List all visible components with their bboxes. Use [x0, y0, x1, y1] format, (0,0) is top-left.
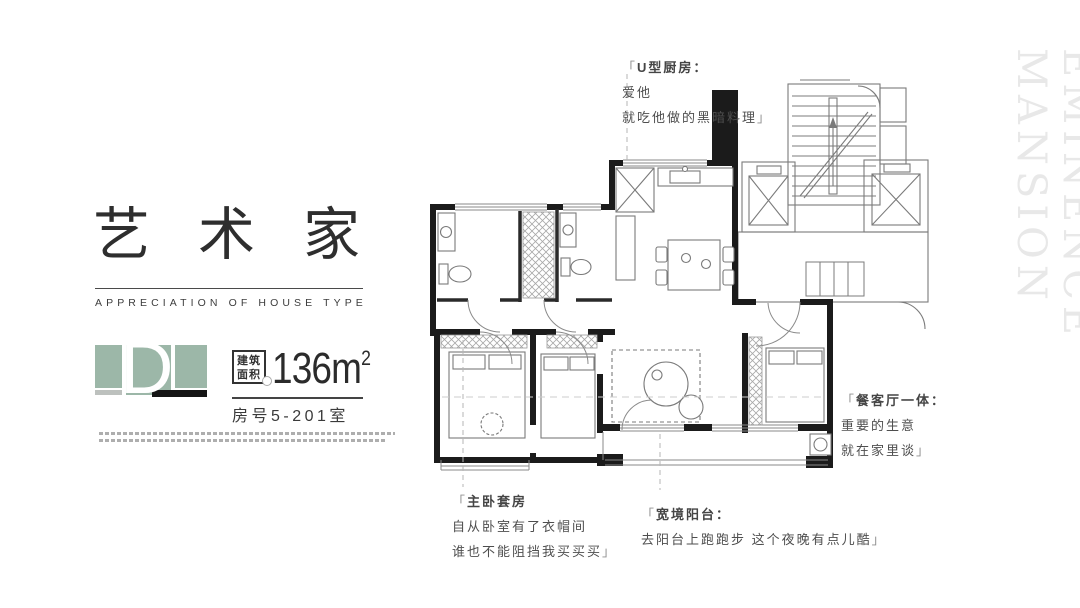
logo-block-right: [175, 345, 207, 388]
logo-block-left: [95, 345, 122, 388]
master-bed-icon: [449, 352, 525, 438]
page-subtitle: APPRECIATION OF HOUSE TYPE: [95, 297, 367, 309]
bathroom-top-left: [438, 213, 471, 284]
type-d-logo: D: [95, 340, 207, 400]
elevator-left-icon: [742, 162, 795, 232]
master-bedroom-annotation: 「主卧套房 自从卧室有了衣帽间 谁也不能阻挡我买买买」: [452, 489, 617, 564]
page-title: 艺术家: [93, 190, 408, 281]
title-divider: [95, 288, 363, 289]
balcony-annotation: 「宽境阳台： 去阳台上跑跑步 这个夜晚有点儿酷」: [641, 502, 887, 552]
disclaimer-line-2: [99, 439, 387, 442]
dining-table-icon: [656, 240, 734, 290]
kitchen-annotation: 「U型厨房： 爱他 就吃他做的黑暗料理」: [622, 55, 772, 130]
shoe-cabinet-icon: [806, 262, 864, 296]
disclaimer-line-1: [99, 432, 395, 435]
logo-gray-strip: [95, 390, 122, 395]
living-room-icons: [612, 350, 703, 422]
washer-icon: [810, 434, 831, 455]
area-badge: 建筑 面积: [232, 350, 266, 384]
room-number: 房号5-201室: [232, 402, 349, 426]
right-bed-icon: [766, 348, 824, 422]
watermark-text: EMINENCE MANSION: [1008, 48, 1080, 608]
logo-letter-d: D: [120, 331, 173, 405]
area-value: 136m2: [272, 344, 370, 394]
area-exponent: 2: [361, 347, 370, 370]
dining-annotation: 「餐客厅一体： 重要的生意 就在家里谈」: [841, 388, 946, 463]
poster-canvas: 艺术家 APPRECIATION OF HOUSE TYPE D 建筑 面积 1…: [0, 0, 1080, 608]
middle-bed-icon: [541, 354, 595, 438]
badge-seal-icon: [262, 376, 272, 386]
stair-core: [788, 80, 906, 205]
bathroom-middle: [560, 213, 591, 276]
area-underline: [232, 397, 363, 399]
